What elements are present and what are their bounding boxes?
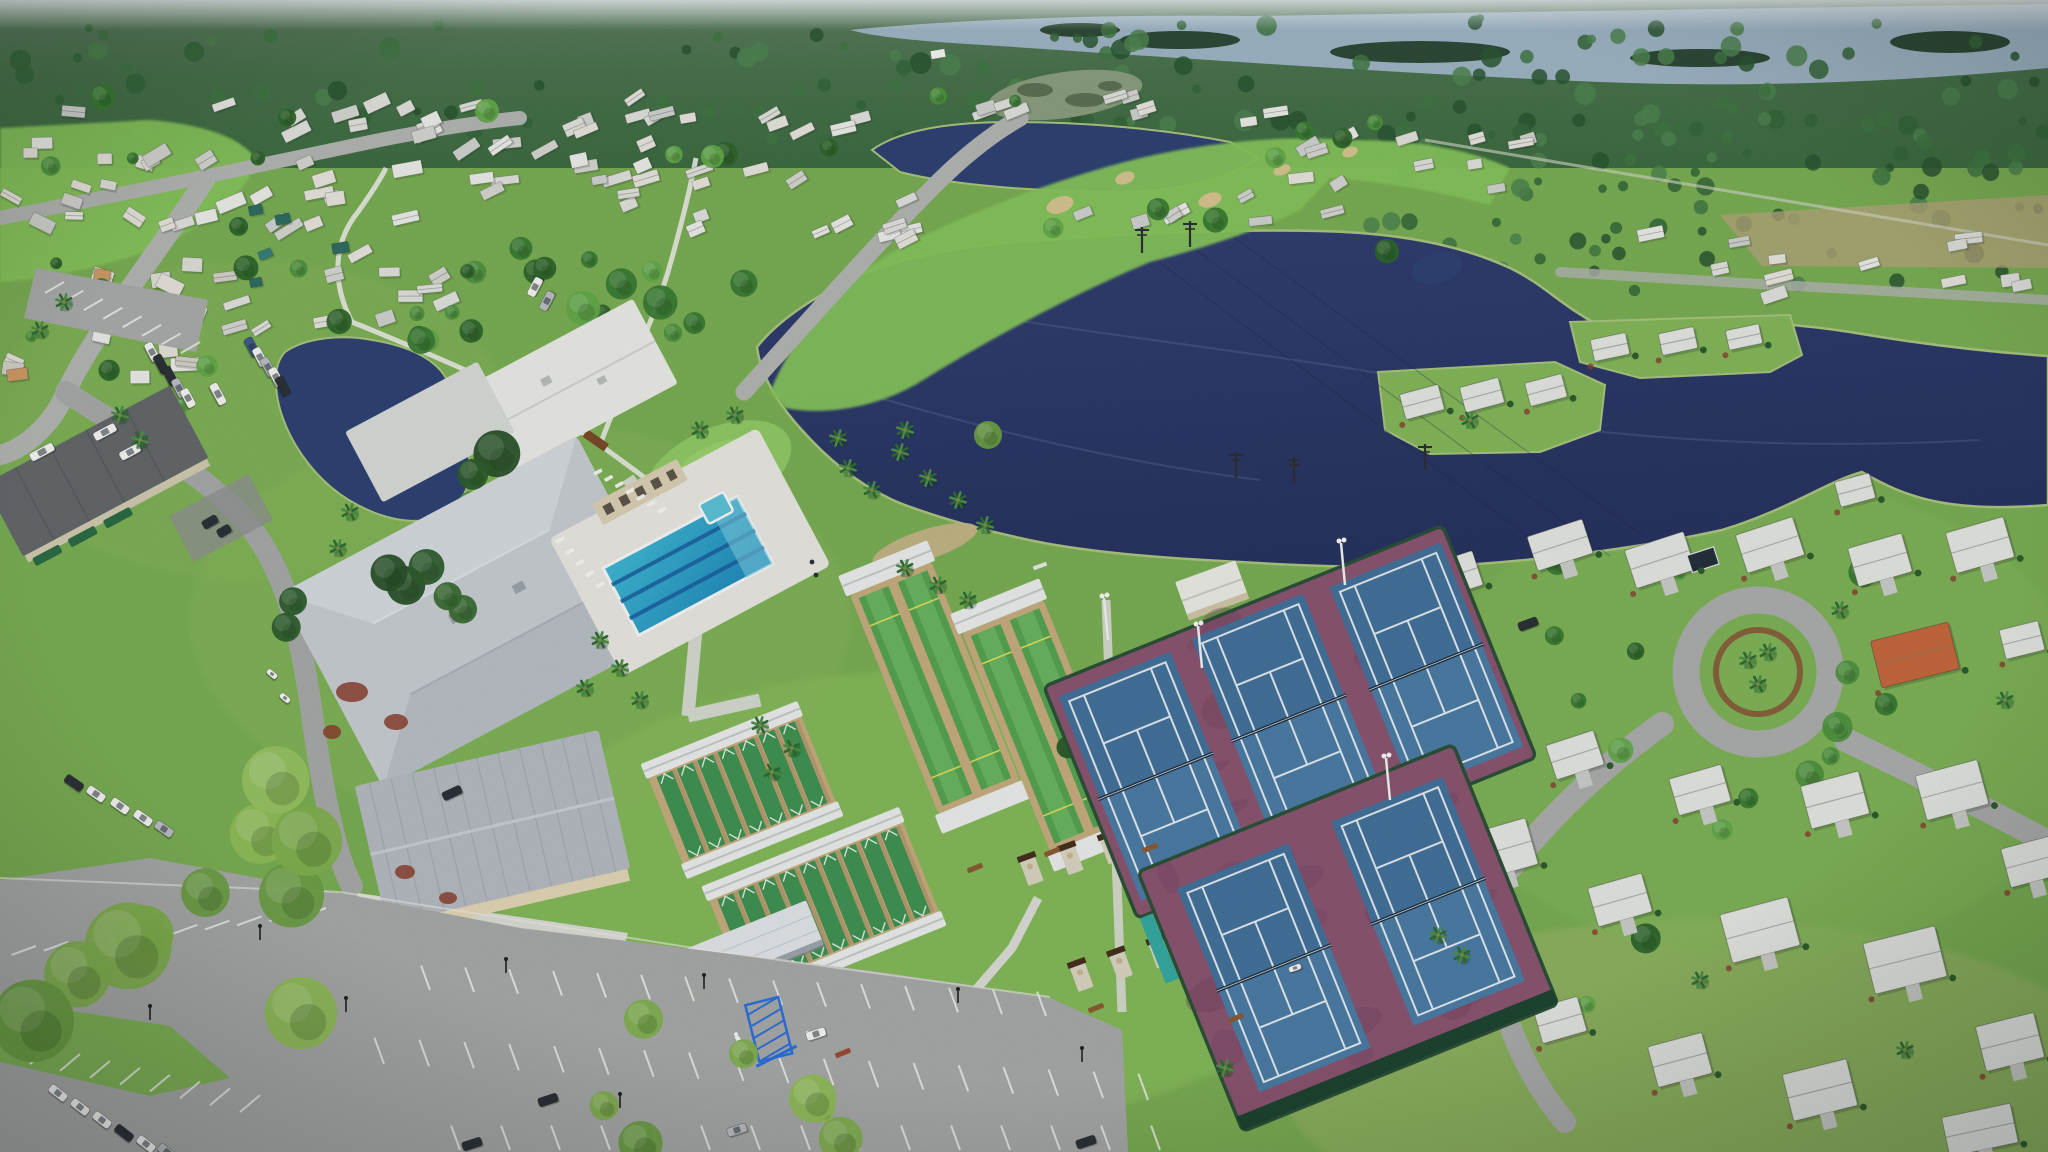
aerial-photo-stage xyxy=(0,0,2048,1152)
film-grain xyxy=(0,0,2048,1152)
aerial-photo xyxy=(0,0,2048,1152)
